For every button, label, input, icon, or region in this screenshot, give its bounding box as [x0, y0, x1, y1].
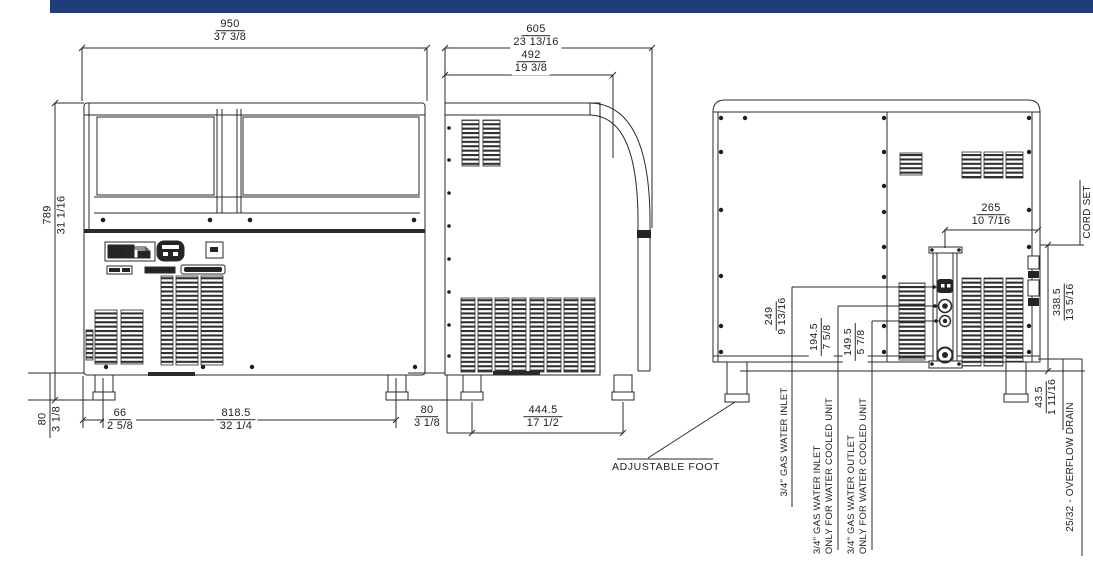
cooled-inlet-label-line2: ONLY FOR WATER COOLED UNIT [824, 398, 836, 554]
cord-set-bracket [1028, 256, 1039, 306]
rear-grille-bottom [962, 278, 1023, 366]
front-sill [84, 229, 425, 233]
dispenser-icon [157, 241, 184, 261]
dim-in: 9 13/16 [777, 296, 789, 335]
dim-mm: 605 [521, 23, 550, 36]
dim-rear-water-inlet-height: 249 9 13/16 [764, 294, 789, 337]
cooled-inlet-label-line1: 3/4" GAS WATER INLET [812, 398, 824, 554]
side-feet [461, 375, 634, 400]
dim-mm: 444.5 [523, 404, 562, 417]
cooled-inlet-label: 3/4" GAS WATER INLET ONLY FOR WATER COOL… [812, 398, 836, 554]
adjustable-foot-label: ADJUSTABLE FOOT [612, 461, 720, 473]
dim-mm: 43.5 [1034, 381, 1047, 413]
dim-front-height: 789 31 1/16 [42, 193, 69, 238]
side-grille-top-1 [462, 120, 479, 166]
dim-mm: 818.5 [216, 407, 255, 420]
dim-mm: 338.5 [1052, 283, 1065, 321]
dim-in: 7 5/8 [822, 324, 834, 351]
dim-front-feet-span: 818.5 32 1/4 [214, 407, 257, 433]
dim-in: 37 3/8 [213, 32, 247, 44]
door-handle [637, 230, 651, 238]
dim-side-foot-height: 80 3 1/8 [411, 404, 443, 430]
side-grille-top-2 [483, 120, 500, 166]
dim-mm: 492 [516, 49, 545, 62]
line-art [0, 0, 1093, 577]
door-hinge-column [161, 276, 173, 365]
dim-in: 2 5/8 [106, 421, 134, 433]
front-grille-left-1 [95, 310, 117, 364]
dim-side-feet-span: 444.5 17 1/2 [521, 404, 564, 430]
serial-label [145, 267, 175, 273]
dim-rear-cord-offset: 265 10 7/16 [969, 202, 1014, 228]
cooled-outlet-label-line2: ONLY FOR WATER COOLED UNIT [858, 398, 870, 554]
dim-mm: 149.5 [843, 323, 856, 361]
cooled-outlet-label-line1: 3/4" GAS WATER OUTLET [846, 398, 858, 554]
dim-rear-cooled-inlet-height: 194.5 7 5/8 [809, 316, 834, 358]
dim-mm: 950 [215, 18, 244, 31]
dim-front-foot-height: 80 3 1/8 [37, 403, 64, 435]
dim-mm: 80 [37, 408, 51, 431]
rear-grille-small [900, 153, 922, 175]
front-grille-right-1 [176, 276, 198, 365]
rear-grille-top [962, 152, 1023, 178]
dim-rear-drain-height: 43.5 1 11/16 [1034, 376, 1059, 418]
dim-side-depth: 605 23 13/16 [510, 23, 561, 49]
dim-in: 32 1/4 [219, 421, 253, 433]
front-view [84, 103, 425, 400]
dim-side-top-depth: 492 19 3/8 [512, 49, 550, 75]
dim-mm: 249 [764, 302, 777, 330]
dim-in: 23 13/16 [512, 37, 559, 49]
dim-mm: 66 [109, 407, 132, 420]
dim-mm: 80 [416, 404, 439, 417]
dim-in: 3 1/8 [51, 405, 63, 433]
cord-set-label: CORD SET [1082, 185, 1093, 238]
cooled-outlet-label: 3/4" GAS WATER OUTLET ONLY FOR WATER COO… [846, 398, 870, 554]
rear-feet [725, 362, 1028, 402]
dim-in: 31 1/16 [56, 195, 68, 236]
dim-in: 1 11/16 [1047, 378, 1059, 416]
water-inlet-label: 3/4" GAS WATER INLET [779, 388, 791, 497]
dim-in: 13 5/16 [1065, 282, 1077, 321]
dim-mm: 265 [976, 202, 1005, 215]
dim-mm: 194.5 [809, 318, 822, 356]
front-grille-right-2 [201, 276, 223, 365]
dim-in: 10 7/16 [971, 216, 1012, 228]
dim-mm: 789 [42, 200, 56, 229]
front-grille-left-2 [121, 310, 143, 364]
rear-connection-column [929, 247, 962, 368]
dim-rear-cooled-outlet-height: 149.5 5 7/8 [843, 321, 868, 363]
dim-in: 3 1/8 [413, 418, 441, 430]
dim-front-foot-offset: 66 2 5/8 [104, 407, 136, 433]
rear-view [713, 100, 1040, 402]
side-view [445, 103, 651, 400]
front-feet [93, 375, 408, 400]
dim-front-width: 950 37 3/8 [211, 18, 249, 44]
dim-in: 5 7/8 [856, 329, 868, 356]
dim-in: 19 3/8 [514, 63, 548, 75]
overflow-drain-label: 25/32 - OVERFLOW DRAIN [1065, 402, 1078, 531]
dim-in: 17 1/2 [526, 418, 560, 430]
dim-rear-cord-height: 338.5 13 5/16 [1052, 280, 1077, 323]
power-inlet-port [937, 279, 953, 293]
drawing-stage: 950 37 3/8 789 31 1/16 80 3 1/8 66 2 5/8… [0, 0, 1093, 577]
